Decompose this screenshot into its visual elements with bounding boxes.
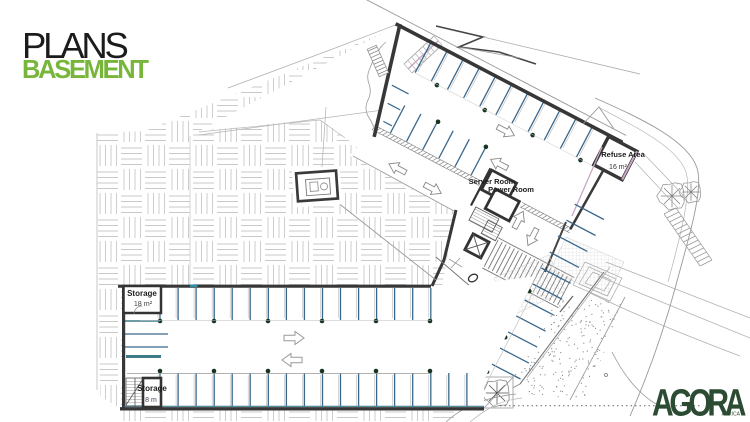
svg-text:Power Room: Power Room xyxy=(488,185,534,194)
svg-text:8 m: 8 m xyxy=(145,397,157,404)
svg-text:Refuse Area: Refuse Area xyxy=(601,150,645,159)
svg-text:18 m²: 18 m² xyxy=(134,299,153,308)
svg-text:16 m²: 16 m² xyxy=(609,164,628,171)
svg-text:Storage: Storage xyxy=(127,289,157,298)
svg-text:AFRICA: AFRICA xyxy=(722,412,741,418)
svg-text:Storage: Storage xyxy=(137,384,167,393)
